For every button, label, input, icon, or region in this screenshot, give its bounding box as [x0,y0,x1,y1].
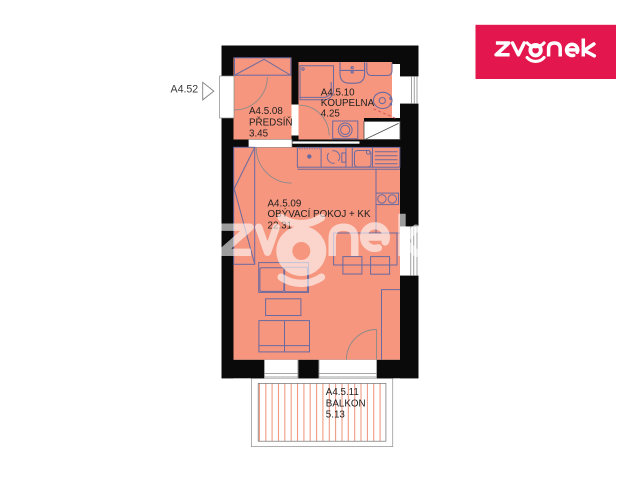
svg-text:A4.5.10: A4.5.10 [321,87,355,98]
svg-text:5.13: 5.13 [326,410,346,421]
svg-text:3.45: 3.45 [249,128,269,139]
svg-text:PŘEDSÍŇ: PŘEDSÍŇ [249,118,293,129]
svg-text:BALKON: BALKON [326,399,366,410]
svg-text:A4.5.09: A4.5.09 [268,198,302,209]
svg-text:A4.5.08: A4.5.08 [249,106,283,117]
svg-text:KOUPELNA: KOUPELNA [321,98,375,109]
svg-text:A4.5.11: A4.5.11 [326,387,359,398]
svg-text:4.25: 4.25 [321,109,341,120]
svg-text:A4.52: A4.52 [171,84,199,96]
